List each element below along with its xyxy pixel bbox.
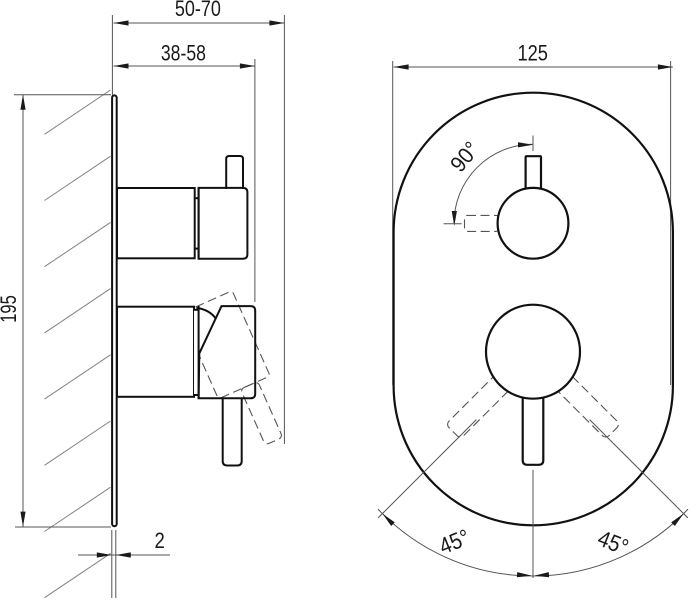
svg-text:38-58: 38-58 (161, 41, 206, 66)
svg-text:125: 125 (517, 41, 548, 66)
svg-text:50-70: 50-70 (175, 0, 221, 21)
svg-text:2: 2 (154, 528, 164, 553)
svg-text:195: 195 (0, 295, 21, 323)
